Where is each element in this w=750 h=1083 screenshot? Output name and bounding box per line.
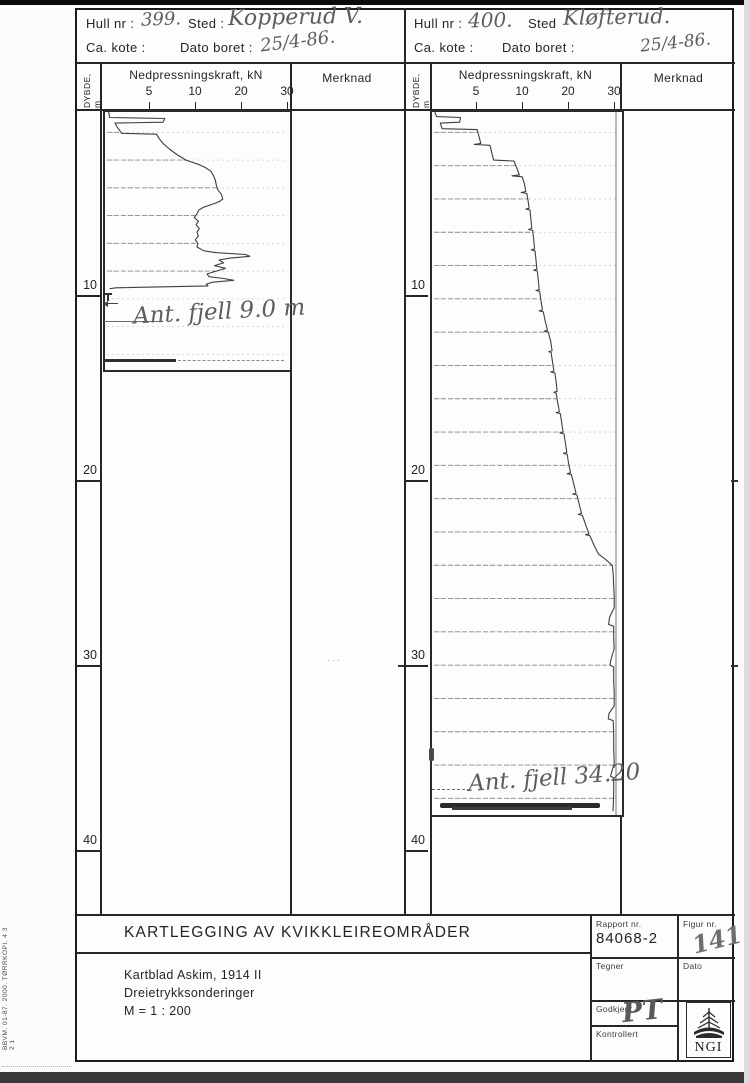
depth-tick-line xyxy=(76,295,100,297)
kote-label: Ca. kote : xyxy=(414,40,474,55)
title-text: KARTLEGGING AV KVIKKLEIREOMRÅDER xyxy=(124,924,471,942)
scan-bottom-bar xyxy=(0,1072,750,1083)
tree-icon xyxy=(689,1004,729,1040)
x-tick-mark xyxy=(568,102,570,109)
report-number-label: Rapport nr. xyxy=(596,919,641,929)
edge-tick-30-right xyxy=(731,665,738,667)
dato-label: Dato xyxy=(683,961,702,971)
titleblock-v1 xyxy=(590,914,592,1062)
scanned-sounding-sheet: BBVM. 01-87. 2000. TØRRKOPI. 4 3 2 1 Hul… xyxy=(0,0,750,1083)
titleblock-band xyxy=(76,952,590,954)
depth-axis-label: DYBDE, m xyxy=(82,66,102,108)
method-line: Dreietrykksonderinger xyxy=(124,986,255,1000)
x-tick-label: 30 xyxy=(604,84,624,98)
depth-tick-label: 40 xyxy=(83,833,97,847)
ngi-logo: NGI xyxy=(686,1002,731,1058)
hull-nr-value: 399. xyxy=(141,8,182,30)
x-tick-label: 20 xyxy=(231,84,251,98)
force-axis-label: Nedpressningskraft, kN xyxy=(104,68,288,82)
titleblock-top xyxy=(76,914,735,916)
x-tick-mark xyxy=(241,102,243,109)
depth-tick-label: 30 xyxy=(411,648,425,662)
sounding-chart-400 xyxy=(430,110,624,817)
merknad-header: Merknad xyxy=(290,71,404,85)
x-tick-label: 5 xyxy=(139,84,159,98)
sted-value: Kløfterud. xyxy=(563,4,671,30)
ngi-logo-text: NGI xyxy=(687,1040,730,1056)
sounding-chart-399 xyxy=(103,110,292,372)
sounding-curve-svg xyxy=(105,112,290,370)
sounding-curve xyxy=(435,112,614,811)
hull-nr-label: Hull nr : xyxy=(414,16,462,31)
depth-tick-line xyxy=(76,480,100,482)
depth-tick-label: 20 xyxy=(411,463,425,477)
depth-tick-label: 30 xyxy=(83,648,97,662)
sounding-curve xyxy=(109,112,250,289)
sted-label: Sted xyxy=(528,16,556,31)
arrow-left-head xyxy=(103,301,108,307)
depth-scale: 10203040 xyxy=(76,110,100,915)
depth-tick-line xyxy=(404,295,428,297)
force-axis-label: Nedpressningskraft, kN xyxy=(431,68,620,82)
x-tick-label: 30 xyxy=(277,84,297,98)
merknad-note-mark: ··· xyxy=(327,655,342,665)
termination-smudge-400b xyxy=(452,807,572,810)
depth-tick-label: 20 xyxy=(83,463,97,477)
tegner-label: Tegner xyxy=(596,961,624,971)
x-tick-mark xyxy=(522,102,524,109)
depth-tick-line xyxy=(76,665,100,667)
dato-boret-label: Dato boret : xyxy=(502,40,575,55)
depth-tick-label: 10 xyxy=(411,278,425,292)
depth-scale: 10203040 xyxy=(404,110,428,915)
edge-tick-20-right xyxy=(731,480,738,482)
scan-right-edge xyxy=(744,0,750,1083)
x-tick-mark xyxy=(287,102,289,109)
stop-mark-t-stem xyxy=(107,293,109,301)
kontrollert-label: Kontrollert xyxy=(596,1029,638,1039)
depth-tick-line xyxy=(404,480,428,482)
divider-depthcol-left xyxy=(100,62,102,915)
depth-tick-line xyxy=(404,850,428,852)
hull-nr-label: Hull nr : xyxy=(86,16,134,31)
edge-microfilm-text: BBVM. 01-87. 2000. TØRRKOPI. 4 3 2 1 xyxy=(2,925,16,1050)
annotation-leader xyxy=(432,789,470,790)
termination-smudge-ext xyxy=(178,360,284,361)
sounding-curve-svg xyxy=(432,112,622,815)
x-axis-ticks: 5102030 xyxy=(103,84,288,110)
depth-tick-line xyxy=(76,850,100,852)
dato-boret-label: Dato boret : xyxy=(180,40,253,55)
x-tick-label: 10 xyxy=(512,84,532,98)
sted-value: Kopperud V. xyxy=(228,4,363,31)
godkjent-signature: PT xyxy=(620,994,663,1029)
x-tick-label: 10 xyxy=(185,84,205,98)
sted-label: Sted : xyxy=(188,16,224,31)
map-sheet-line: Kartblad Askim, 1914 II xyxy=(124,968,262,982)
merknad-header: Merknad xyxy=(620,71,737,85)
scale-line: M = 1 : 200 xyxy=(124,1004,191,1018)
scan-dust-row xyxy=(2,1066,72,1067)
x-tick-mark xyxy=(614,102,616,109)
kote-label: Ca. kote : xyxy=(86,40,146,55)
divider-header xyxy=(76,62,735,64)
report-number-value: 84068-2 xyxy=(596,930,658,947)
depth-axis-label: DYBDE, m xyxy=(411,66,431,108)
x-tick-label: 20 xyxy=(558,84,578,98)
x-axis-ticks: 5102030 xyxy=(430,84,620,110)
depth-tick-label: 10 xyxy=(83,278,97,292)
x-tick-label: 5 xyxy=(466,84,486,98)
titleblock-r1 xyxy=(590,957,735,959)
left-edge-blob xyxy=(429,748,434,761)
titleblock-v2 xyxy=(677,914,679,1062)
x-tick-mark xyxy=(149,102,151,109)
depth-tick-label: 40 xyxy=(411,833,425,847)
depth-tick-line xyxy=(404,665,428,667)
hull-nr-value: 400. xyxy=(468,8,513,33)
termination-smudge-399 xyxy=(104,359,176,362)
x-tick-mark xyxy=(476,102,478,109)
x-tick-mark xyxy=(195,102,197,109)
